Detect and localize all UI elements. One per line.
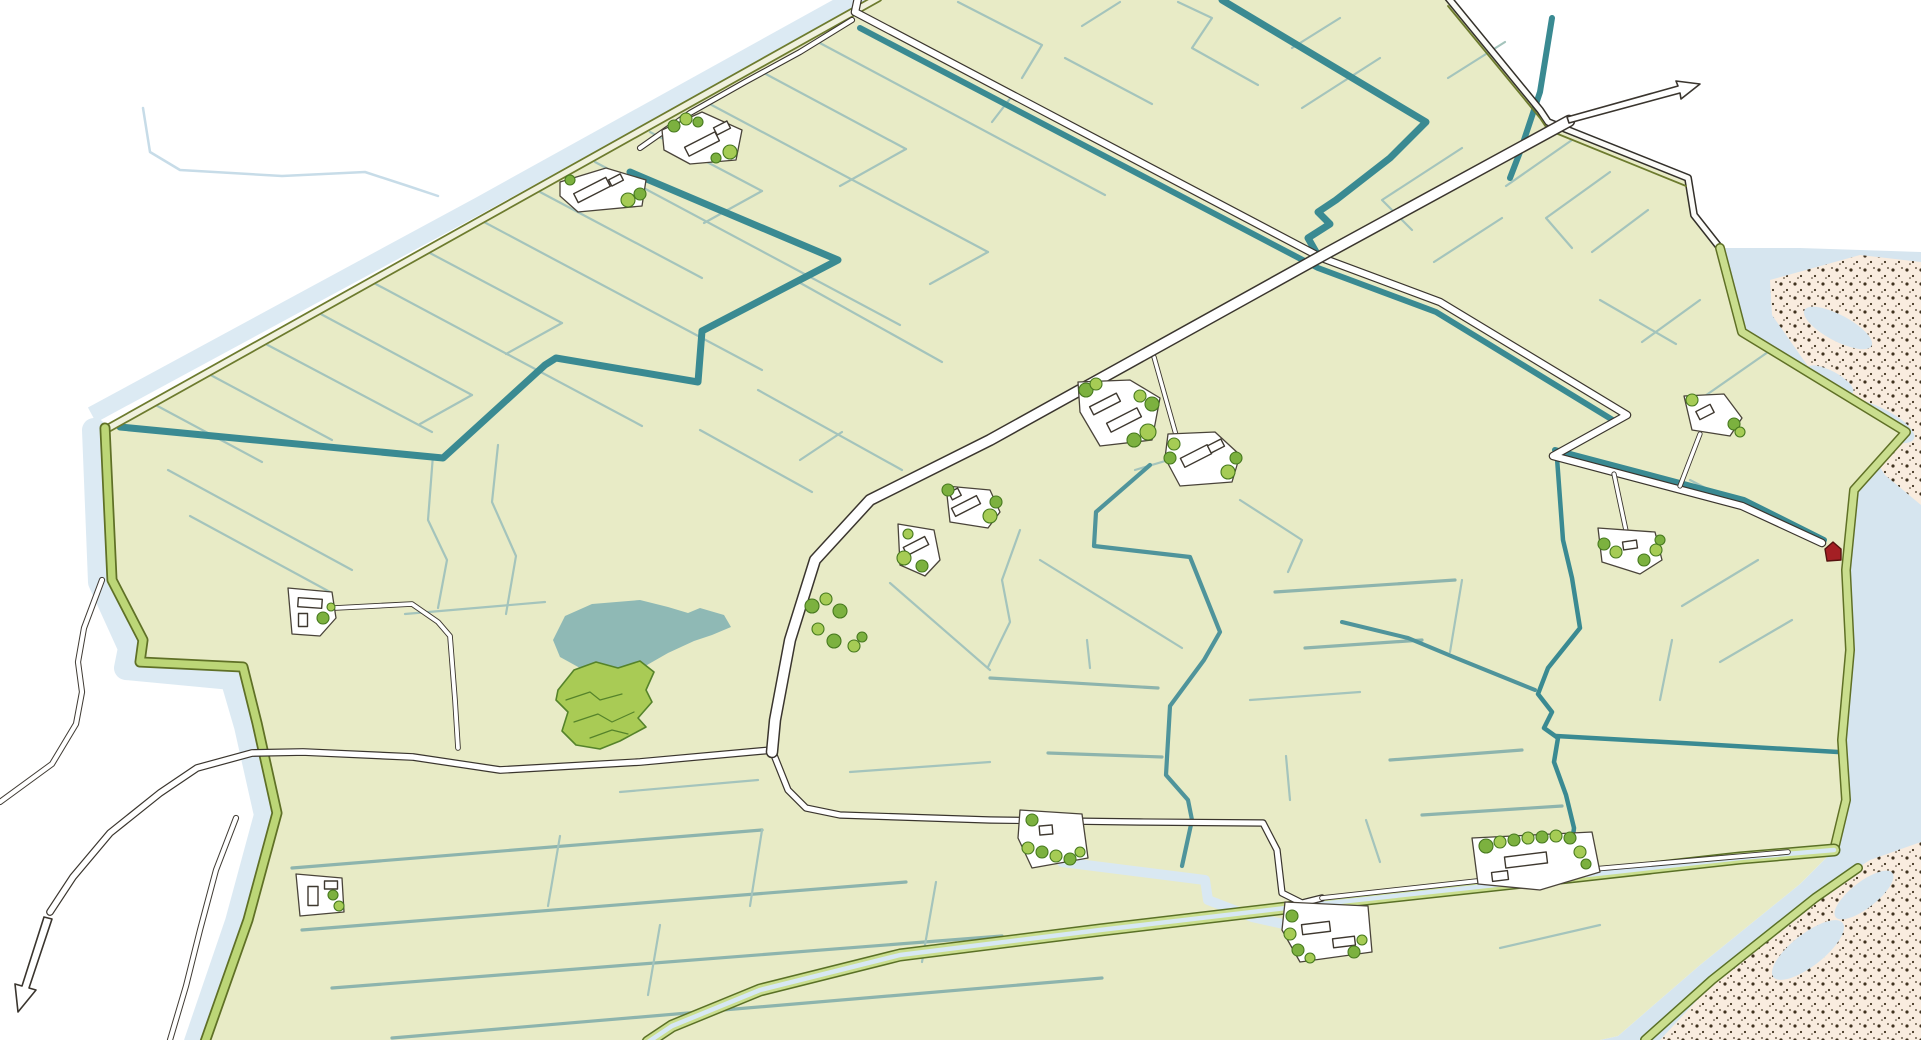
tree bbox=[827, 634, 841, 648]
tree bbox=[1348, 946, 1360, 958]
tree bbox=[1127, 433, 1141, 447]
tree bbox=[1075, 847, 1085, 857]
tree bbox=[317, 612, 329, 624]
farm-building bbox=[308, 887, 318, 906]
tree bbox=[680, 113, 692, 125]
farm-building bbox=[1039, 825, 1053, 835]
tree bbox=[1026, 814, 1038, 826]
tree bbox=[1050, 850, 1062, 862]
tree bbox=[1140, 424, 1156, 440]
tree bbox=[634, 188, 646, 200]
tree bbox=[1284, 928, 1296, 940]
tree bbox=[942, 484, 954, 496]
tree bbox=[833, 604, 847, 618]
tree bbox=[1550, 830, 1562, 842]
tree bbox=[1655, 535, 1665, 545]
tree bbox=[1735, 427, 1745, 437]
farm-building bbox=[1623, 540, 1638, 550]
tree bbox=[723, 145, 737, 159]
tree bbox=[1610, 546, 1622, 558]
tree bbox=[1574, 846, 1586, 858]
tree bbox=[897, 551, 911, 565]
tree bbox=[1164, 452, 1176, 464]
farm-building bbox=[299, 614, 308, 627]
tree bbox=[1168, 438, 1180, 450]
tree bbox=[1145, 397, 1159, 411]
tree bbox=[621, 193, 635, 207]
tree bbox=[1581, 859, 1591, 869]
polder-map-illustration bbox=[0, 0, 1921, 1040]
northeast-exit-arrow bbox=[1567, 81, 1700, 123]
southwest-exit-arrow bbox=[15, 917, 52, 1012]
tree bbox=[903, 529, 913, 539]
farm-building bbox=[298, 598, 323, 609]
tree bbox=[711, 153, 721, 163]
tree bbox=[805, 599, 819, 613]
tree bbox=[328, 890, 338, 900]
tree bbox=[327, 603, 335, 611]
tree bbox=[990, 496, 1002, 508]
tree bbox=[1650, 544, 1662, 556]
tree bbox=[565, 175, 575, 185]
tree bbox=[1686, 394, 1698, 406]
tree bbox=[1064, 853, 1076, 865]
tree bbox=[1134, 390, 1146, 402]
tree bbox=[1230, 452, 1242, 464]
layer-stream bbox=[143, 108, 438, 196]
tree bbox=[1638, 554, 1650, 566]
farm-building bbox=[325, 881, 338, 889]
tree bbox=[1022, 842, 1034, 854]
tree bbox=[812, 623, 824, 635]
tree bbox=[1494, 836, 1506, 848]
outer-coast-road-north bbox=[0, 580, 102, 802]
tree bbox=[1221, 465, 1235, 479]
tree bbox=[1522, 832, 1534, 844]
tree bbox=[334, 901, 344, 911]
tree bbox=[668, 120, 680, 132]
tree bbox=[1508, 834, 1520, 846]
tree bbox=[1036, 846, 1048, 858]
tree bbox=[983, 509, 997, 523]
tree bbox=[916, 560, 928, 572]
tree bbox=[1479, 839, 1493, 853]
tree bbox=[1536, 831, 1548, 843]
tree bbox=[1357, 935, 1367, 945]
tree bbox=[1286, 910, 1298, 922]
tree bbox=[848, 640, 860, 652]
tree bbox=[693, 117, 703, 127]
farm-building bbox=[1492, 871, 1509, 882]
tree bbox=[1292, 944, 1304, 956]
map-canvas bbox=[0, 0, 1921, 1040]
tree bbox=[820, 593, 832, 605]
tree bbox=[857, 632, 867, 642]
tree bbox=[1564, 832, 1576, 844]
outside-stream bbox=[143, 108, 438, 196]
tree bbox=[1598, 538, 1610, 550]
tree bbox=[1090, 378, 1102, 390]
tree bbox=[1305, 953, 1315, 963]
